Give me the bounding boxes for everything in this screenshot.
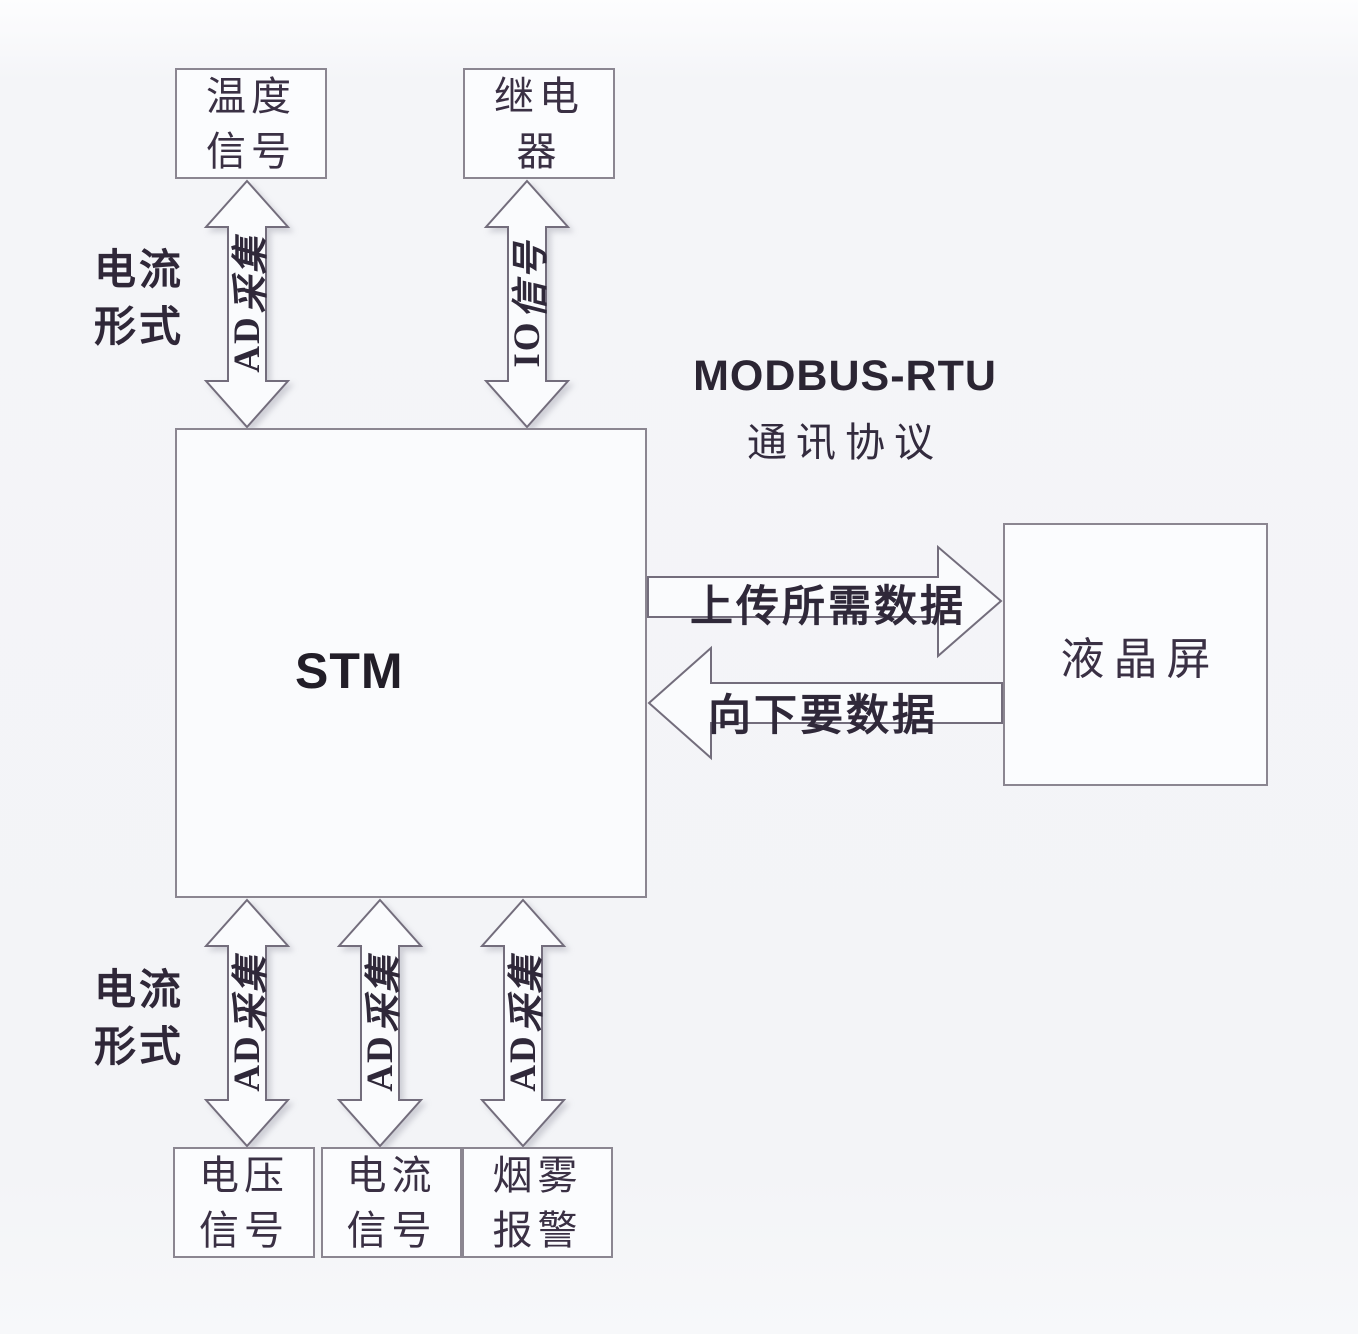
smoke-arrow-label-cjk: 采集 xyxy=(496,954,550,1032)
lcd-screen-label: 液晶屏 xyxy=(1052,623,1220,687)
stm-box: STM xyxy=(175,428,647,898)
voltage-arrow-label-cjk: 采集 xyxy=(220,954,274,1032)
diagram-canvas: 温度 信号 继电 器 STM 液晶屏 电压 信号 电流 信号 烟雾 报警 电流 … xyxy=(0,0,1358,1334)
current-arrow-label-cjk: 采集 xyxy=(353,954,407,1032)
temp-signal-label: 温度 信号 xyxy=(206,69,296,179)
smoke-arrow-label-latin: AD xyxy=(502,1034,545,1091)
current-signal-box: 电流 信号 xyxy=(321,1147,462,1258)
current-form-label-top: 电流 形式 xyxy=(83,243,195,357)
voltage-signal-label: 电压 信号 xyxy=(199,1148,289,1258)
temp-signal-box: 温度 信号 xyxy=(175,68,327,179)
upload-data-label: 上传所需数据 xyxy=(678,572,978,634)
voltage-arrow-label-latin: AD xyxy=(226,1034,269,1091)
smoke-alarm-label: 烟雾 报警 xyxy=(493,1148,583,1258)
voltage-signal-box: 电压 信号 xyxy=(173,1147,315,1258)
current-arrow-label: AD采集 xyxy=(358,913,402,1133)
smoke-alarm-box: 烟雾 报警 xyxy=(462,1147,613,1258)
modbus-protocol-line2: 通讯协议 xyxy=(650,410,1040,468)
current-form-label-bottom: 电流 形式 xyxy=(83,963,195,1077)
current-arrow-label-latin: AD xyxy=(359,1034,402,1091)
temp-arrow-label-cjk: 采集 xyxy=(220,235,274,313)
temp-arrow-label: AD采集 xyxy=(225,194,269,414)
relay-arrow-label: IO信号 xyxy=(505,194,549,414)
current-signal-label: 电流 信号 xyxy=(347,1148,437,1258)
smoke-arrow-label: AD采集 xyxy=(501,913,545,1133)
relay-box: 继电 器 xyxy=(463,68,615,179)
relay-arrow-label-latin: IO xyxy=(506,320,549,367)
modbus-protocol-line1: MODBUS-RTU xyxy=(650,352,1040,401)
lcd-screen-box: 液晶屏 xyxy=(1003,523,1268,786)
relay-label: 继电 器 xyxy=(494,69,584,179)
voltage-arrow-label: AD采集 xyxy=(225,913,269,1133)
temp-arrow-label-latin: AD xyxy=(226,315,269,372)
stm-label: STM xyxy=(295,642,404,700)
request-data-label: 向下要数据 xyxy=(688,681,958,743)
relay-arrow-label-cjk: 信号 xyxy=(500,240,554,318)
modbus-protocol-label: MODBUS-RTU 通讯协议 xyxy=(650,352,1040,468)
